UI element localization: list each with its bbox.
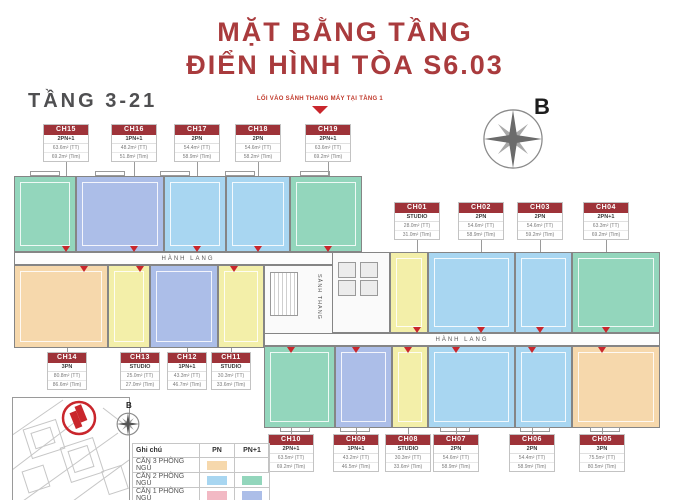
unit-label-ch18: CH18 2PN 54.6m² (TT) 58.2m² (Tim) (235, 124, 281, 162)
unit-label-ch11: CH11 STUDIO 30.3m² (TT) 33.6m² (Tim) (211, 352, 251, 390)
unit-id: CH03 (518, 203, 562, 213)
entrance-arrow-icon (130, 246, 138, 252)
site-location-map (12, 397, 130, 500)
unit-area-tim: 69.2m² (Tim) (269, 462, 313, 471)
unit-label-ch17: CH17 2PN 54.4m² (TT) 58.9m² (Tim) (174, 124, 220, 162)
unit-type: 2PN (175, 135, 219, 144)
legend-swatch-3pn1 (242, 461, 262, 470)
elevator-icon (360, 280, 378, 296)
entrance-arrow-icon (413, 327, 421, 333)
balcony (440, 427, 470, 432)
page-title: MẶT BẰNG TẦNG ĐIỂN HÌNH TÒA S6.03 (150, 16, 540, 82)
floor-plan-page: MẶT BẰNG TẦNG ĐIỂN HÌNH TÒA S6.03 TẦNG 3… (0, 0, 674, 500)
unit-area-tim: 31.0m² (Tim) (395, 230, 439, 239)
unit-area-tim: 46.7m² (Tim) (168, 380, 206, 389)
unit-type: 2PN+1 (584, 213, 628, 222)
unit-area-ch02 (428, 252, 515, 333)
unit-area-tim: 51.8m² (Tim) (112, 152, 156, 161)
leader-line (231, 348, 232, 352)
unit-id: CH07 (434, 435, 478, 445)
leader-line (140, 348, 141, 352)
unit-area-tim: 69.2m² (Tim) (44, 152, 88, 161)
unit-area-tt: 75.5m² (TT) (580, 454, 624, 462)
unit-label-ch04: CH04 2PN+1 63.3m² (TT) 69.2m² (Tim) (583, 202, 629, 240)
unit-area-ch17 (164, 176, 226, 252)
unit-area-tim: 86.6m² (Tim) (48, 380, 86, 389)
stairs-icon (270, 272, 298, 316)
unit-type: 2PN (518, 213, 562, 222)
page-title-line2: ĐIỂN HÌNH TÒA S6.03 (150, 49, 540, 82)
legend-swatch-1pn (207, 491, 227, 500)
unit-type: 1PN+1 (334, 445, 378, 454)
unit-area-tim: 58.9m² (Tim) (510, 462, 554, 471)
unit-type: 3PN (48, 363, 86, 372)
unit-area-tim: 58.2m² (Tim) (236, 152, 280, 161)
entrance-arrow-icon (62, 246, 70, 252)
leader-line (417, 240, 418, 252)
unit-id: CH16 (112, 125, 156, 135)
unit-area-ch10 (264, 346, 335, 428)
unit-label-ch12: CH12 1PN+1 43.3m² (TT) 46.7m² (Tim) (167, 352, 207, 390)
leader-line (187, 348, 188, 352)
unit-area-tim: 46.5m² (Tim) (334, 462, 378, 471)
unit-label-ch13: CH13 STUDIO 25.0m² (TT) 27.0m² (Tim) (120, 352, 160, 390)
unit-area-ch16 (76, 176, 164, 252)
unit-area-tt: 54.6m² (TT) (236, 144, 280, 152)
unit-type: 2PN+1 (269, 445, 313, 454)
balcony (95, 171, 125, 176)
unit-area-ch13 (108, 265, 150, 348)
leader-line (540, 240, 541, 252)
unit-type: 2PN (236, 135, 280, 144)
unit-area-ch11 (218, 265, 264, 348)
balcony (300, 171, 330, 176)
unit-area-tt: 43.3m² (TT) (168, 372, 206, 380)
unit-label-ch16: CH16 1PN+1 48.2m² (TT) 51.8m² (Tim) (111, 124, 157, 162)
corridor-right-label: HÀNH LANG (435, 337, 488, 343)
unit-id: CH14 (48, 353, 86, 363)
legend-swatch-1pn1 (242, 491, 262, 500)
corridor-right: HÀNH LANG (264, 333, 660, 346)
unit-id: CH13 (121, 353, 159, 363)
leader-line (356, 428, 357, 434)
entrance-arrow-icon (230, 266, 238, 272)
unit-id: CH04 (584, 203, 628, 213)
unit-id: CH10 (269, 435, 313, 445)
leader-line (481, 240, 482, 252)
leader-line (67, 348, 68, 352)
unit-id: CH01 (395, 203, 439, 213)
unit-type: STUDIO (395, 213, 439, 222)
legend-row-2pn: CĂN 2 PHÒNG NGỦ (133, 473, 270, 488)
unit-area-tt: 28.0m² (TT) (395, 222, 439, 230)
legend-title: Ghi chú (133, 444, 200, 458)
unit-label-ch07: CH07 2PN 54.6m² (TT) 58.9m² (Tim) (433, 434, 479, 472)
unit-id: CH19 (306, 125, 350, 135)
unit-area-ch08 (392, 346, 428, 428)
inset-north-label: B (126, 401, 132, 410)
unit-area-ch09 (335, 346, 392, 428)
unit-type: STUDIO (386, 445, 430, 454)
entrance-arrow-icon (254, 246, 262, 252)
unit-area-tt: 63.6m² (TT) (306, 144, 350, 152)
unit-area-tt: 54.4m² (TT) (175, 144, 219, 152)
entry-note-arrow-icon (312, 106, 328, 114)
legend-col-pn: PN (200, 444, 235, 458)
balcony (520, 427, 550, 432)
balcony (160, 171, 190, 176)
elevator-icon (338, 280, 356, 296)
unit-area-tim: 58.9m² (Tim) (459, 230, 503, 239)
unit-label-ch19: CH19 2PN+1 63.6m² (TT) 69.2m² (Tim) (305, 124, 351, 162)
page-title-line1: MẶT BẰNG TẦNG (150, 16, 540, 49)
leader-line (602, 428, 603, 434)
unit-id: CH09 (334, 435, 378, 445)
unit-area-tim: 33.6m² (Tim) (386, 462, 430, 471)
unit-label-ch09: CH09 1PN+1 43.2m² (TT) 46.5m² (Tim) (333, 434, 379, 472)
unit-id: CH11 (212, 353, 250, 363)
entrance-arrow-icon (602, 327, 610, 333)
leader-line (456, 428, 457, 434)
entrance-arrow-icon (136, 266, 144, 272)
unit-area-tt: 63.6m² (TT) (44, 144, 88, 152)
entrance-arrow-icon (324, 246, 332, 252)
unit-area-tt: 30.3m² (TT) (386, 454, 430, 462)
unit-type: 2PN (434, 445, 478, 454)
unit-area-ch12 (150, 265, 218, 348)
leader-line (532, 428, 533, 434)
legend-label: CĂN 3 PHÒNG NGỦ (133, 458, 200, 473)
unit-label-ch15: CH15 2PN+1 63.6m² (TT) 69.2m² (Tim) (43, 124, 89, 162)
leader-line (328, 162, 329, 176)
elevator-icon (338, 262, 356, 278)
unit-area-tim: 59.2m² (Tim) (518, 230, 562, 239)
entrance-arrow-icon (452, 347, 460, 353)
unit-area-tim: 58.9m² (Tim) (434, 462, 478, 471)
leader-line (408, 428, 409, 434)
entrance-arrow-icon (352, 347, 360, 353)
entrance-arrow-icon (598, 347, 606, 353)
unit-area-ch19 (290, 176, 362, 252)
unit-type: 2PN (510, 445, 554, 454)
leader-line (291, 428, 292, 434)
balcony (340, 427, 370, 432)
balcony (280, 427, 310, 432)
unit-label-ch14: CH14 3PN 80.8m² (TT) 86.6m² (Tim) (47, 352, 87, 390)
unit-area-ch14 (14, 265, 108, 348)
entry-note: LỐI VÀO SẢNH THANG MÁY TẠI TẦNG 1 (230, 96, 410, 102)
unit-id: CH05 (580, 435, 624, 445)
unit-type: STUDIO (212, 363, 250, 372)
unit-area-ch05 (572, 346, 660, 428)
unit-type: STUDIO (121, 363, 159, 372)
unit-type: 2PN+1 (44, 135, 88, 144)
entrance-arrow-icon (193, 246, 201, 252)
unit-area-ch01 (390, 252, 428, 333)
leader-line (66, 162, 67, 176)
corridor-left-label: HÀNH LANG (161, 256, 214, 262)
unit-area-ch03 (515, 252, 572, 333)
entrance-arrow-icon (80, 266, 88, 272)
unit-area-tt: 80.8m² (TT) (48, 372, 86, 380)
unit-area-tim: 27.0m² (Tim) (121, 380, 159, 389)
unit-label-ch02: CH02 2PN 54.6m² (TT) 58.9m² (Tim) (458, 202, 504, 240)
leader-line (197, 162, 198, 176)
legend-row-1pn: CĂN 1 PHÒNG NGỦ (133, 488, 270, 500)
balcony (30, 171, 60, 176)
elevator-icon (360, 262, 378, 278)
legend-table: Ghi chú PN PN+1 CĂN 3 PHÒNG NGỦ CĂN 2 PH… (132, 443, 270, 500)
unit-area-ch07 (428, 346, 515, 428)
unit-label-ch10: CH10 2PN+1 63.5m² (TT) 69.2m² (Tim) (268, 434, 314, 472)
unit-area-tim: 69.2m² (Tim) (584, 230, 628, 239)
inset-compass-icon (116, 412, 140, 441)
unit-area-tt: 54.4m² (TT) (510, 454, 554, 462)
unit-area-tt: 43.2m² (TT) (334, 454, 378, 462)
north-label: B (534, 94, 550, 120)
entrance-arrow-icon (287, 347, 295, 353)
unit-area-ch04 (572, 252, 660, 333)
legend-swatch-3pn (207, 461, 227, 470)
leader-line (134, 162, 135, 176)
entrance-arrow-icon (536, 327, 544, 333)
unit-id: CH15 (44, 125, 88, 135)
unit-label-ch01: CH01 STUDIO 28.0m² (TT) 31.0m² (Tim) (394, 202, 440, 240)
legend-swatch-2pn (207, 476, 227, 485)
corridor-left: HÀNH LANG (14, 252, 362, 265)
unit-area-tt: 25.0m² (TT) (121, 372, 159, 380)
unit-type: 1PN+1 (112, 135, 156, 144)
unit-area-tim: 58.9m² (Tim) (175, 152, 219, 161)
legend-swatch-2pn1 (242, 476, 262, 485)
legend-label: CĂN 2 PHÒNG NGỦ (133, 473, 200, 488)
unit-area-tt: 54.6m² (TT) (434, 454, 478, 462)
unit-area-tim: 69.2m² (Tim) (306, 152, 350, 161)
unit-area-tim: 80.5m² (Tim) (580, 462, 624, 471)
unit-label-ch05: CH05 3PN 75.5m² (TT) 80.5m² (Tim) (579, 434, 625, 472)
unit-type: 1PN+1 (168, 363, 206, 372)
leader-line (258, 162, 259, 176)
unit-id: CH08 (386, 435, 430, 445)
balcony (590, 427, 620, 432)
unit-id: CH18 (236, 125, 280, 135)
unit-area-ch15 (14, 176, 76, 252)
entrance-arrow-icon (528, 347, 536, 353)
unit-label-ch03: CH03 2PN 54.6m² (TT) 59.2m² (Tim) (517, 202, 563, 240)
legend-col-pn1: PN+1 (235, 444, 270, 458)
unit-id: CH02 (459, 203, 503, 213)
unit-area-tt: 63.5m² (TT) (269, 454, 313, 462)
legend-header-row: Ghi chú PN PN+1 (133, 444, 270, 458)
unit-id: CH06 (510, 435, 554, 445)
unit-type: 2PN (459, 213, 503, 222)
unit-label-ch06: CH06 2PN 54.4m² (TT) 58.9m² (Tim) (509, 434, 555, 472)
unit-type: 3PN (580, 445, 624, 454)
unit-area-ch18 (226, 176, 290, 252)
unit-area-ch06 (515, 346, 572, 428)
floor-range-label: TẦNG 3-21 (28, 90, 157, 113)
unit-id: CH17 (175, 125, 219, 135)
leader-line (606, 240, 607, 252)
unit-area-tt: 54.6m² (TT) (459, 222, 503, 230)
unit-type: 2PN+1 (306, 135, 350, 144)
unit-id: CH12 (168, 353, 206, 363)
unit-label-ch08: CH08 STUDIO 30.3m² (TT) 33.6m² (Tim) (385, 434, 431, 472)
legend-row-3pn: CĂN 3 PHÒNG NGỦ (133, 458, 270, 473)
unit-area-tim: 33.6m² (Tim) (212, 380, 250, 389)
entrance-arrow-icon (404, 347, 412, 353)
unit-area-tt: 63.3m² (TT) (584, 222, 628, 230)
entrance-arrow-icon (477, 327, 485, 333)
unit-area-tt: 54.6m² (TT) (518, 222, 562, 230)
unit-area-tt: 30.3m² (TT) (212, 372, 250, 380)
unit-area-tt: 48.2m² (TT) (112, 144, 156, 152)
legend-label: CĂN 1 PHÒNG NGỦ (133, 488, 200, 500)
balcony (225, 171, 255, 176)
